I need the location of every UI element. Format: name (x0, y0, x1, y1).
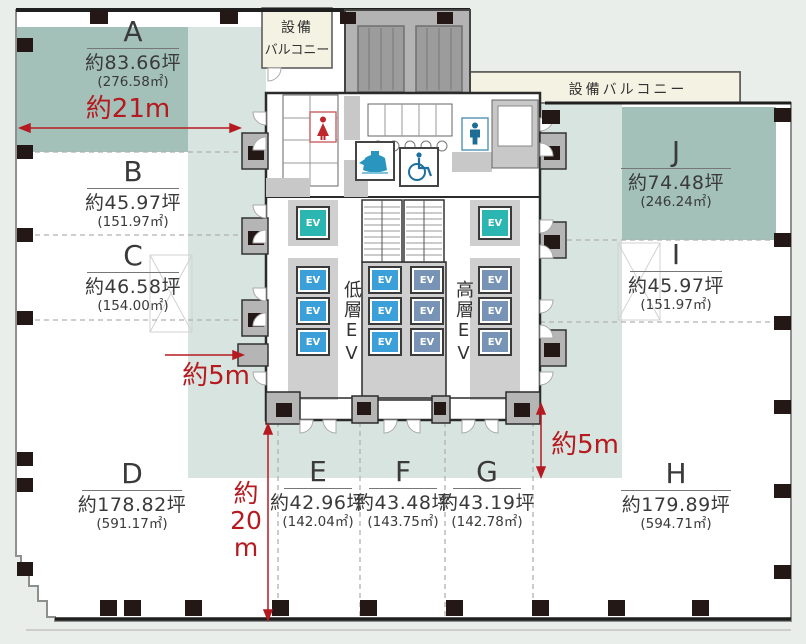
low-rise-elevator: EV (368, 297, 402, 325)
low-rise-elevator: EV (296, 328, 330, 356)
section-area-tsubo: 約83.66坪 (58, 53, 208, 74)
section-area-m2: (151.97㎡) (58, 214, 208, 231)
section-area-m2: (246.24㎡) (601, 194, 751, 211)
section-c-label: C 約46.58坪 (154.00㎡) (58, 242, 208, 315)
section-b-label: B 約45.97坪 (151.97㎡) (58, 158, 208, 231)
section-area-m2: (142.78㎡) (412, 514, 562, 531)
low-rise-elevator: EV (296, 297, 330, 325)
section-letter: A (58, 18, 208, 47)
low-rise-elevator: EV (368, 328, 402, 356)
section-area-tsubo: 約43.19坪 (412, 493, 562, 514)
low-rise-elevator: EV (296, 266, 330, 294)
high-rise-bank-label: 高層EV (450, 280, 476, 366)
balcony-top-left-line2: バルコニー (265, 39, 330, 58)
depth-char: 約 (233, 480, 258, 507)
section-area-m2: (276.58㎡) (58, 74, 208, 91)
section-area-tsubo: 約74.48坪 (601, 173, 751, 194)
section-d-label: D 約178.82坪 (591.17㎡) (57, 460, 207, 533)
high-rise-elevator: EV (478, 297, 512, 325)
shuttle-elevator: EV (296, 206, 330, 240)
balcony-top-left-line1: 設備 (281, 17, 313, 37)
low-rise-bank-label: 低層EV (338, 280, 364, 366)
depth-char: m (234, 534, 258, 561)
section-area-m2: (151.97㎡) (601, 297, 751, 314)
dimension-bottom-depth: 約 20 m (230, 480, 262, 561)
section-area-m2: (591.17㎡) (57, 516, 207, 533)
section-letter: D (57, 460, 207, 489)
dimension-top-width: 約21m (86, 96, 170, 122)
female-restroom-icon (310, 112, 336, 142)
section-letter: C (58, 242, 208, 271)
section-area-tsubo: 約45.97坪 (601, 276, 751, 297)
high-rise-elevator: EV (410, 266, 444, 294)
section-i-label: I 約45.97坪 (151.97㎡) (601, 241, 751, 314)
section-area-tsubo: 約46.58坪 (58, 277, 208, 298)
section-h-label: H 約179.89坪 (594.71㎡) (601, 460, 751, 533)
floor-plan: A 約83.66坪 (276.58㎡) B 約45.97坪 (151.97㎡) … (0, 0, 806, 644)
dimension-left-offset: 約5m (182, 363, 250, 389)
section-g-label: G 約43.19坪 (142.78㎡) (412, 458, 562, 531)
section-letter: B (58, 158, 208, 187)
low-rise-elevator: EV (368, 266, 402, 294)
section-letter: G (412, 458, 562, 487)
section-letter: H (601, 460, 751, 489)
section-letter: J (601, 138, 751, 167)
section-j-label: J 約74.48坪 (246.24㎡) (601, 138, 751, 211)
section-area-m2: (594.71㎡) (601, 516, 751, 533)
core (266, 93, 540, 424)
depth-char: 20 (230, 507, 262, 534)
high-rise-elevator: EV (478, 266, 512, 294)
section-area-m2: (154.00㎡) (58, 298, 208, 315)
balcony-top-right-label: 設備バルコニー (569, 79, 688, 99)
section-area-tsubo: 約179.89坪 (601, 495, 751, 516)
section-area-tsubo: 約45.97坪 (58, 193, 208, 214)
section-area-tsubo: 約178.82坪 (57, 495, 207, 516)
high-rise-elevator: EV (410, 297, 444, 325)
dimension-right-offset: 約5m (551, 432, 619, 458)
high-rise-elevator: EV (410, 328, 444, 356)
section-letter: I (601, 241, 751, 270)
male-restroom-icon (462, 118, 488, 150)
kettle-icon (356, 142, 394, 180)
high-rise-elevator: EV (478, 328, 512, 356)
accessible-restroom-icon (400, 148, 438, 186)
shuttle-elevator: EV (478, 206, 512, 240)
section-a-label: A 約83.66坪 (276.58㎡) (58, 18, 208, 91)
